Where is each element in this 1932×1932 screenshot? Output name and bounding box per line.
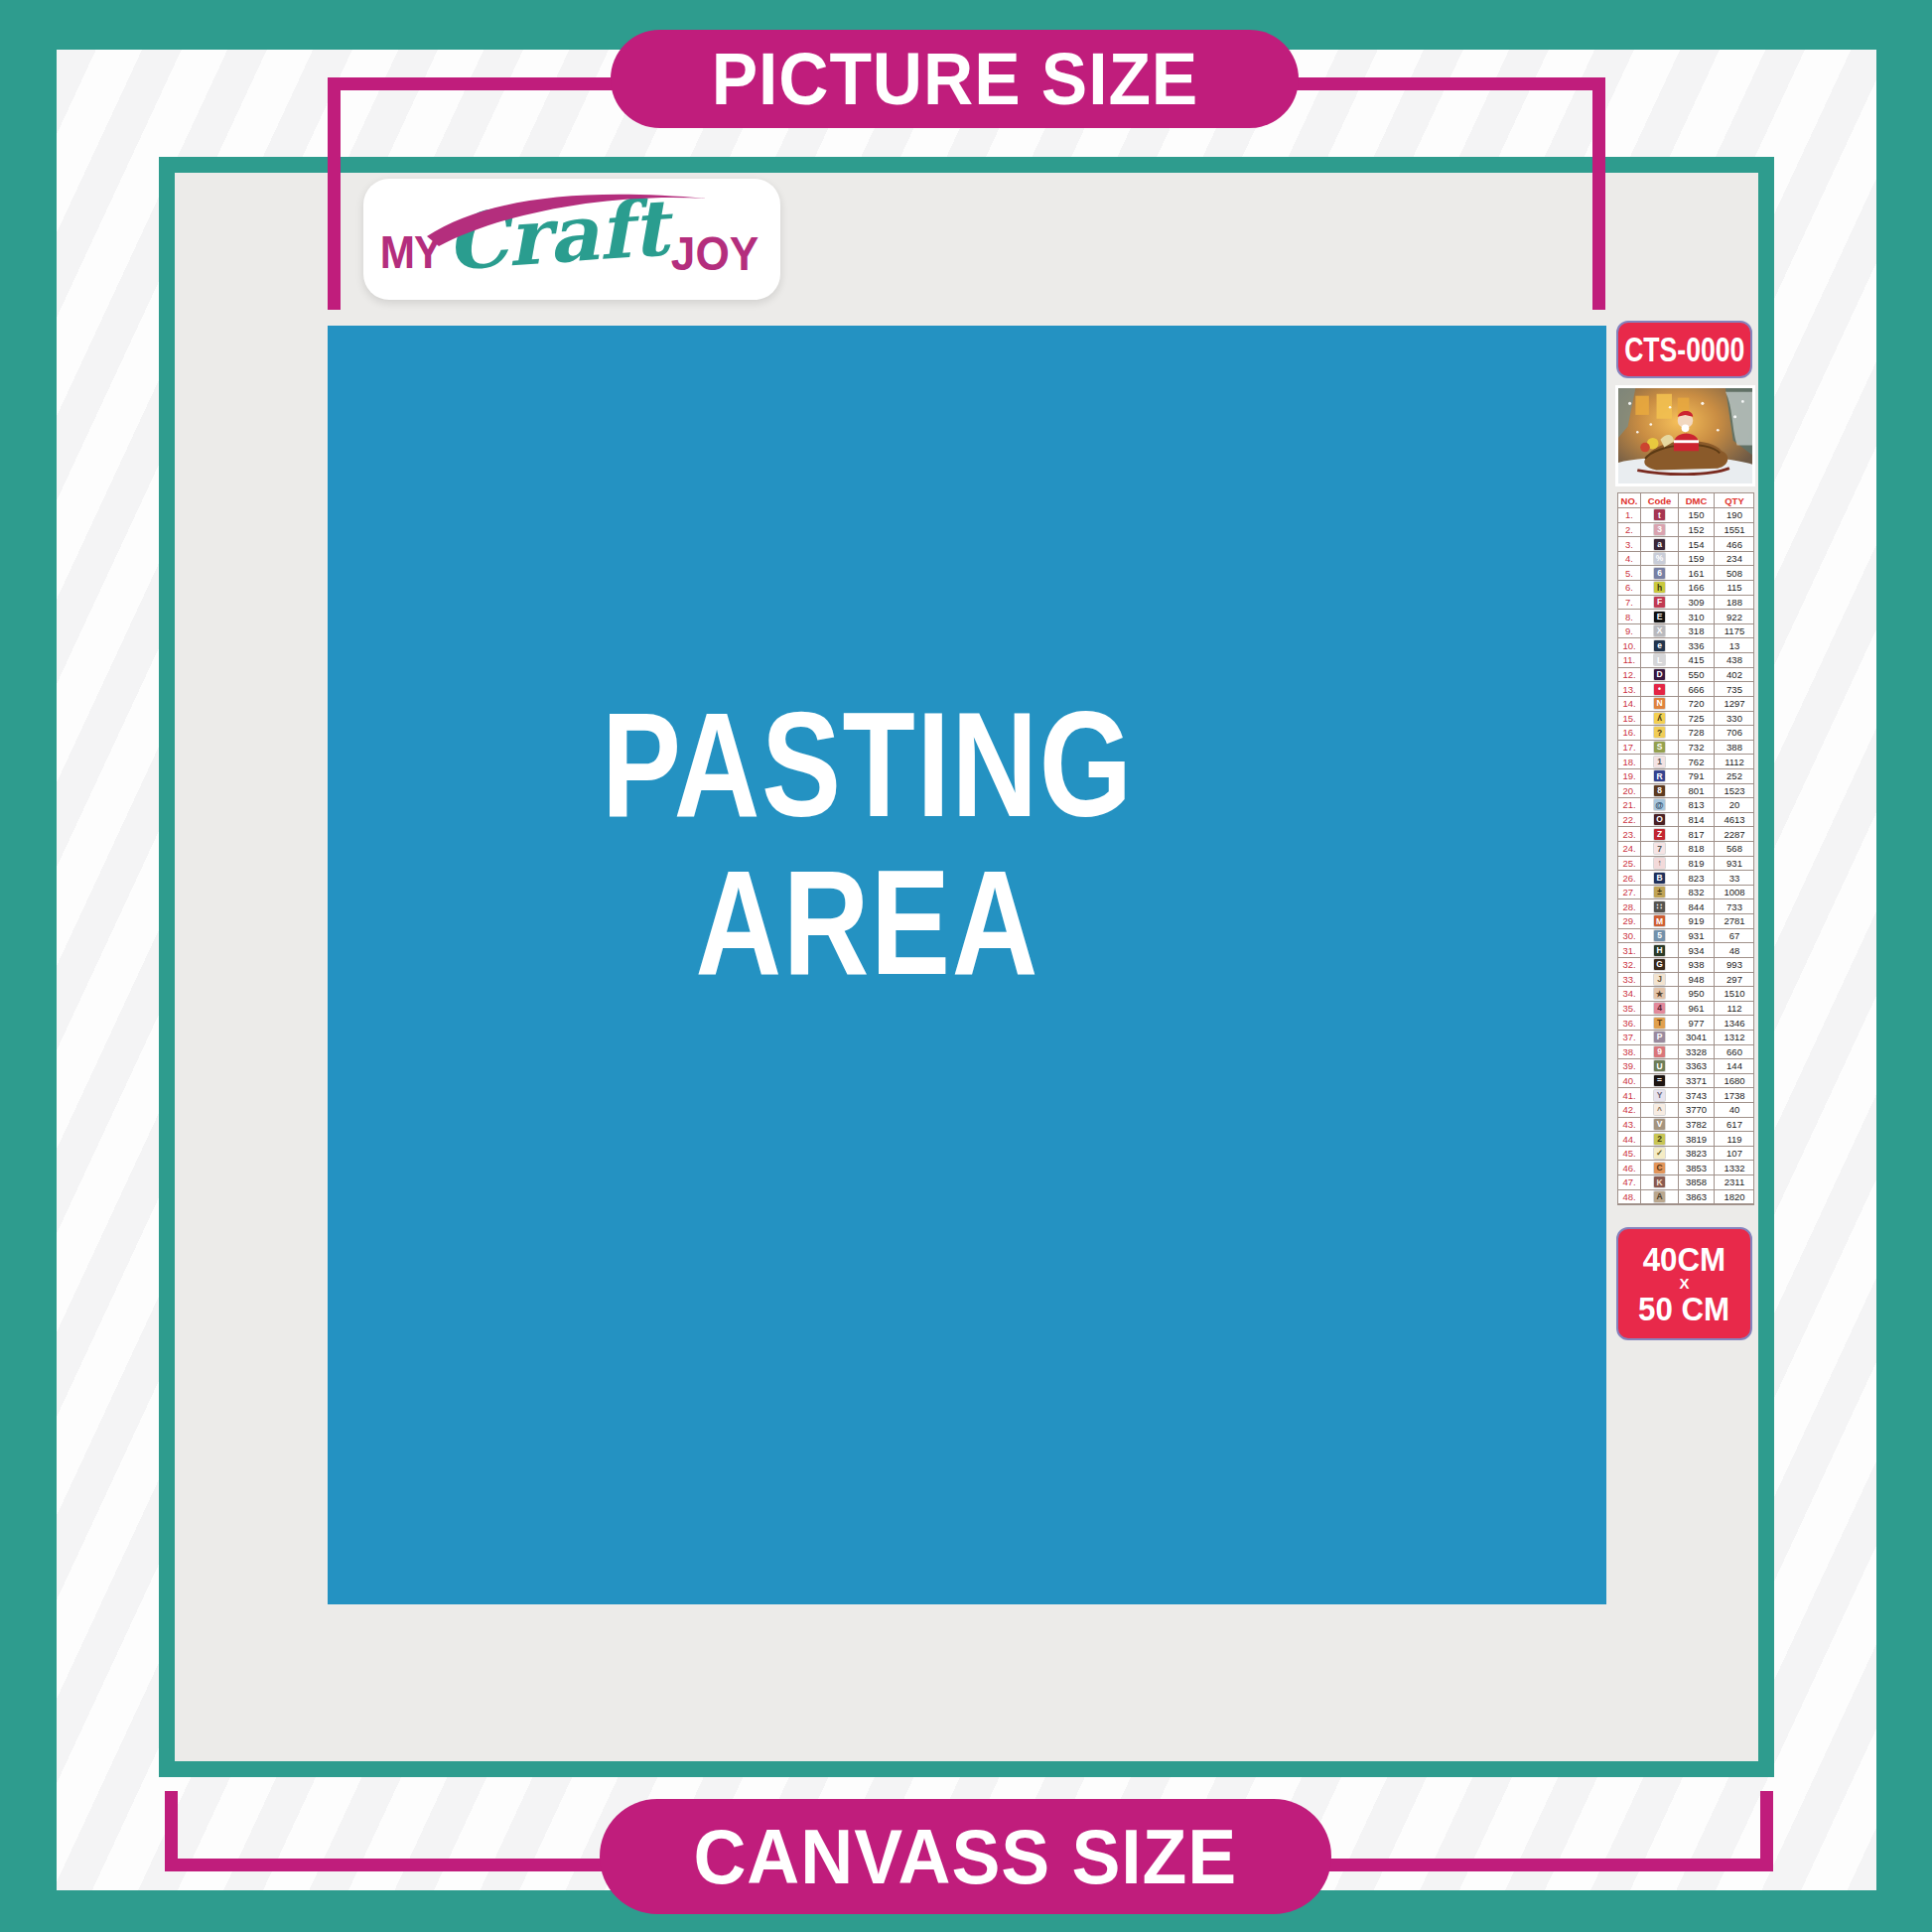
code-symbol-swatch: L — [1654, 654, 1665, 665]
row-number: 19. — [1618, 769, 1641, 784]
row-number: 39. — [1618, 1059, 1641, 1074]
column-header: QTY — [1715, 493, 1754, 508]
code-cell: h — [1641, 581, 1679, 596]
code-symbol-swatch: 5 — [1654, 930, 1665, 941]
row-number: 24. — [1618, 842, 1641, 857]
dmc-value: 161 — [1679, 566, 1715, 581]
color-table-row: 6.h166115 — [1618, 581, 1753, 596]
qty-value: 190 — [1715, 508, 1754, 523]
color-table-row: 11.L415438 — [1618, 653, 1753, 668]
code-symbol-swatch: h — [1654, 582, 1665, 593]
dmc-value: 336 — [1679, 638, 1715, 653]
row-number: 47. — [1618, 1175, 1641, 1190]
code-symbol-swatch: T — [1654, 1018, 1665, 1029]
dmc-value: 3782 — [1679, 1118, 1715, 1133]
dmc-value: 3823 — [1679, 1147, 1715, 1162]
row-number: 32. — [1618, 958, 1641, 973]
row-number: 18. — [1618, 755, 1641, 769]
dmc-value: 732 — [1679, 741, 1715, 756]
code-cell: P — [1641, 1031, 1679, 1045]
code-cell: H — [1641, 943, 1679, 958]
code-symbol-swatch: Y — [1654, 1090, 1665, 1101]
dmc-value: 817 — [1679, 827, 1715, 842]
dmc-value: 961 — [1679, 1002, 1715, 1017]
row-number: 36. — [1618, 1016, 1641, 1031]
dmc-value: 152 — [1679, 523, 1715, 538]
code-symbol-swatch: S — [1654, 742, 1665, 753]
code-symbol-swatch: 3 — [1654, 524, 1665, 535]
dmc-value: 919 — [1679, 914, 1715, 929]
color-table-row: 21.@81320 — [1618, 798, 1753, 813]
color-table-row: 35.4961112 — [1618, 1002, 1753, 1017]
code-symbol-swatch: G — [1654, 959, 1665, 970]
row-number: 14. — [1618, 697, 1641, 712]
dmc-value: 154 — [1679, 537, 1715, 552]
dmc-value: 938 — [1679, 958, 1715, 973]
dmc-value: 728 — [1679, 726, 1715, 741]
dmc-value: 725 — [1679, 712, 1715, 727]
dmc-value: 3328 — [1679, 1045, 1715, 1060]
code-symbol-swatch: @ — [1654, 799, 1665, 810]
color-table: NO.CodeDMCQTY1.t1501902.315215513.a15446… — [1617, 492, 1754, 1205]
dmc-value: 762 — [1679, 755, 1715, 769]
row-number: 27. — [1618, 886, 1641, 900]
qty-value: 1346 — [1715, 1016, 1754, 1031]
code-symbol-swatch: 2 — [1654, 1134, 1665, 1145]
dmc-value: 415 — [1679, 653, 1715, 668]
color-table-row: 37.P30411312 — [1618, 1031, 1753, 1045]
code-cell: 7 — [1641, 842, 1679, 857]
qty-value: 234 — [1715, 552, 1754, 567]
dmc-value: 3770 — [1679, 1103, 1715, 1118]
code-cell: e — [1641, 638, 1679, 653]
code-cell: B — [1641, 871, 1679, 886]
qty-value: 660 — [1715, 1045, 1754, 1060]
code-symbol-swatch: D — [1654, 669, 1665, 680]
row-number: 3. — [1618, 537, 1641, 552]
color-table-row: 25.↑819931 — [1618, 857, 1753, 872]
picture-size-label: PICTURE SIZE — [711, 37, 1198, 121]
color-table-row: 20.88011523 — [1618, 784, 1753, 799]
code-cell: 9 — [1641, 1045, 1679, 1060]
code-cell: 6 — [1641, 566, 1679, 581]
dmc-value: 823 — [1679, 871, 1715, 886]
qty-value: 568 — [1715, 842, 1754, 857]
code-symbol-swatch: a — [1654, 539, 1665, 550]
sku-badge: CTS-0000 — [1616, 321, 1752, 378]
code-cell: t — [1641, 508, 1679, 523]
code-cell: Y — [1641, 1088, 1679, 1103]
size-line3: 50 CM — [1638, 1292, 1729, 1325]
code-symbol-swatch: • — [1654, 684, 1665, 695]
pasting-area-label: PASTING AREA — [602, 686, 1134, 1002]
code-symbol-swatch: B — [1654, 873, 1665, 884]
column-header: NO. — [1618, 493, 1641, 508]
code-cell: D — [1641, 668, 1679, 683]
qty-value: 20 — [1715, 798, 1754, 813]
color-table-row: 16.?728706 — [1618, 726, 1753, 741]
dmc-value: 3363 — [1679, 1059, 1715, 1074]
dmc-value: 3853 — [1679, 1161, 1715, 1175]
color-table-row: 45.✓3823107 — [1618, 1147, 1753, 1162]
color-table-row: 2.31521551 — [1618, 523, 1753, 538]
qty-value: 735 — [1715, 682, 1754, 697]
dmc-value: 818 — [1679, 842, 1715, 857]
color-table-row: 19.R791252 — [1618, 769, 1753, 784]
row-number: 37. — [1618, 1031, 1641, 1045]
code-cell: 2 — [1641, 1132, 1679, 1147]
code-symbol-swatch: 7 — [1654, 843, 1665, 854]
qty-value: 1312 — [1715, 1031, 1754, 1045]
qty-value: 144 — [1715, 1059, 1754, 1074]
row-number: 35. — [1618, 1002, 1641, 1017]
code-symbol-swatch: P — [1654, 1032, 1665, 1042]
color-table-row: 31.H93448 — [1618, 943, 1753, 958]
qty-value: 922 — [1715, 610, 1754, 624]
dmc-value: 3863 — [1679, 1190, 1715, 1205]
qty-value: 1008 — [1715, 886, 1754, 900]
code-cell: a — [1641, 537, 1679, 552]
dmc-value: 844 — [1679, 899, 1715, 914]
logo-word-my: MY — [380, 225, 442, 279]
code-cell: • — [1641, 682, 1679, 697]
row-number: 28. — [1618, 899, 1641, 914]
code-symbol-swatch: Z — [1654, 829, 1665, 840]
code-symbol-swatch: ^ — [1654, 1104, 1665, 1115]
row-number: 21. — [1618, 798, 1641, 813]
color-table-row: 33.J948297 — [1618, 973, 1753, 988]
dmc-value: 801 — [1679, 784, 1715, 799]
code-cell: 5 — [1641, 929, 1679, 944]
dmc-value: 309 — [1679, 596, 1715, 611]
code-symbol-swatch: U — [1654, 1060, 1665, 1071]
code-symbol-swatch: % — [1654, 553, 1665, 564]
code-symbol-swatch: V — [1654, 1119, 1665, 1130]
color-table-row: 15.ʎ725330 — [1618, 712, 1753, 727]
color-table-row: 28.∷844733 — [1618, 899, 1753, 914]
color-table-row: 32.G938993 — [1618, 958, 1753, 973]
row-number: 38. — [1618, 1045, 1641, 1060]
color-table-row: 12.D550402 — [1618, 668, 1753, 683]
dmc-value: 3041 — [1679, 1031, 1715, 1045]
color-table-row: 23.Z8172287 — [1618, 827, 1753, 842]
canvass-size-pill: CANVASS SIZE — [600, 1799, 1331, 1914]
code-symbol-swatch: 6 — [1654, 568, 1665, 579]
dmc-value: 950 — [1679, 987, 1715, 1002]
color-table-row: 8.E310922 — [1618, 610, 1753, 624]
code-symbol-swatch: ∷ — [1654, 901, 1665, 912]
code-cell: E — [1641, 610, 1679, 624]
code-symbol-swatch: J — [1654, 974, 1665, 985]
color-table-row: 14.N7201297 — [1618, 697, 1753, 712]
code-cell: J — [1641, 973, 1679, 988]
qty-value: 13 — [1715, 638, 1754, 653]
dmc-value: 813 — [1679, 798, 1715, 813]
color-table-row: 36.T9771346 — [1618, 1016, 1753, 1031]
product-thumbnail — [1615, 385, 1755, 486]
row-number: 7. — [1618, 596, 1641, 611]
dmc-value: 666 — [1679, 682, 1715, 697]
code-cell: 4 — [1641, 1002, 1679, 1017]
row-number: 16. — [1618, 726, 1641, 741]
row-number: 6. — [1618, 581, 1641, 596]
qty-value: 402 — [1715, 668, 1754, 683]
logo-word-joy: JOY — [671, 226, 759, 281]
code-symbol-swatch: N — [1654, 698, 1665, 709]
qty-value: 733 — [1715, 899, 1754, 914]
code-cell: ✓ — [1641, 1147, 1679, 1162]
dmc-value: 819 — [1679, 857, 1715, 872]
canvass-size-label: CANVASS SIZE — [694, 1812, 1238, 1902]
code-symbol-swatch: M — [1654, 915, 1665, 926]
code-symbol-swatch: 1 — [1654, 757, 1665, 767]
code-cell: ∷ — [1641, 899, 1679, 914]
code-cell: 3 — [1641, 523, 1679, 538]
row-number: 9. — [1618, 624, 1641, 639]
code-cell: T — [1641, 1016, 1679, 1031]
code-cell: ★ — [1641, 987, 1679, 1002]
color-table-row: 10.e33613 — [1618, 638, 1753, 653]
row-number: 4. — [1618, 552, 1641, 567]
canvass-frame-left-stub — [165, 1791, 178, 1871]
color-table-row: 44.23819119 — [1618, 1132, 1753, 1147]
code-cell: X — [1641, 624, 1679, 639]
code-symbol-swatch: ✓ — [1654, 1148, 1665, 1159]
qty-value: 297 — [1715, 973, 1754, 988]
code-cell: M — [1641, 914, 1679, 929]
qty-value: 330 — [1715, 712, 1754, 727]
row-number: 46. — [1618, 1161, 1641, 1175]
qty-value: 1820 — [1715, 1190, 1754, 1205]
row-number: 30. — [1618, 929, 1641, 944]
qty-value: 993 — [1715, 958, 1754, 973]
code-cell: ± — [1641, 886, 1679, 900]
code-symbol-swatch: C — [1654, 1163, 1665, 1173]
row-number: 11. — [1618, 653, 1641, 668]
color-table-row: 18.17621112 — [1618, 755, 1753, 769]
picture-frame-right-line — [1592, 77, 1605, 310]
color-table-row: 43.V3782617 — [1618, 1118, 1753, 1133]
code-cell: ? — [1641, 726, 1679, 741]
row-number: 2. — [1618, 523, 1641, 538]
code-cell: ʎ — [1641, 712, 1679, 727]
code-cell: O — [1641, 813, 1679, 828]
row-number: 40. — [1618, 1074, 1641, 1089]
code-symbol-swatch: ± — [1654, 887, 1665, 897]
pasting-area: PASTING AREA — [328, 326, 1606, 1604]
code-cell: ^ — [1641, 1103, 1679, 1118]
code-symbol-swatch: ★ — [1654, 988, 1665, 999]
qty-value: 931 — [1715, 857, 1754, 872]
row-number: 29. — [1618, 914, 1641, 929]
row-number: 33. — [1618, 973, 1641, 988]
dmc-value: 791 — [1679, 769, 1715, 784]
color-table-row: 38.93328660 — [1618, 1045, 1753, 1060]
color-table-row: 4.%159234 — [1618, 552, 1753, 567]
dmc-value: 318 — [1679, 624, 1715, 639]
color-table-row: 27.±8321008 — [1618, 886, 1753, 900]
color-table-row: 47.K38582311 — [1618, 1175, 1753, 1190]
code-cell: ↑ — [1641, 857, 1679, 872]
qty-value: 119 — [1715, 1132, 1754, 1147]
code-symbol-swatch: 9 — [1654, 1046, 1665, 1057]
qty-value: 40 — [1715, 1103, 1754, 1118]
qty-value: 4613 — [1715, 813, 1754, 828]
code-cell: C — [1641, 1161, 1679, 1175]
qty-value: 1297 — [1715, 697, 1754, 712]
code-symbol-swatch: F — [1654, 597, 1665, 608]
row-number: 48. — [1618, 1190, 1641, 1205]
code-symbol-swatch: ? — [1654, 727, 1665, 738]
code-symbol-swatch: 4 — [1654, 1003, 1665, 1014]
dmc-value: 931 — [1679, 929, 1715, 944]
code-cell: G — [1641, 958, 1679, 973]
code-cell: N — [1641, 697, 1679, 712]
qty-value: 1175 — [1715, 624, 1754, 639]
code-symbol-swatch: ʎ — [1654, 713, 1665, 724]
row-number: 8. — [1618, 610, 1641, 624]
dmc-value: 550 — [1679, 668, 1715, 683]
code-cell: = — [1641, 1074, 1679, 1089]
dmc-value: 166 — [1679, 581, 1715, 596]
color-table-row: 9.X3181175 — [1618, 624, 1753, 639]
color-table-row: 3.a154466 — [1618, 537, 1753, 552]
code-cell: V — [1641, 1118, 1679, 1133]
qty-value: 1738 — [1715, 1088, 1754, 1103]
pasting-line1: PASTING — [602, 686, 1134, 844]
color-table-row: 17.S732388 — [1618, 741, 1753, 756]
code-cell: Z — [1641, 827, 1679, 842]
qty-value: 466 — [1715, 537, 1754, 552]
code-symbol-swatch: 8 — [1654, 785, 1665, 796]
color-table-row: 39.U3363144 — [1618, 1059, 1753, 1074]
code-symbol-swatch: R — [1654, 770, 1665, 781]
canvass-frame-right-stub — [1760, 1791, 1773, 1871]
color-table-row: 30.593167 — [1618, 929, 1753, 944]
row-number: 5. — [1618, 566, 1641, 581]
color-table-row: 5.6161508 — [1618, 566, 1753, 581]
color-table-row: 46.C38531332 — [1618, 1161, 1753, 1175]
qty-value: 1112 — [1715, 755, 1754, 769]
code-symbol-swatch: X — [1654, 625, 1665, 636]
qty-value: 252 — [1715, 769, 1754, 784]
qty-value: 112 — [1715, 1002, 1754, 1017]
qty-value: 107 — [1715, 1147, 1754, 1162]
color-table-row: 29.M9192781 — [1618, 914, 1753, 929]
color-table-row: 13.•666735 — [1618, 682, 1753, 697]
qty-value: 33 — [1715, 871, 1754, 886]
qty-value: 67 — [1715, 929, 1754, 944]
qty-value: 48 — [1715, 943, 1754, 958]
pasting-line2: AREA — [602, 844, 1134, 1002]
row-number: 23. — [1618, 827, 1641, 842]
dmc-value: 977 — [1679, 1016, 1715, 1031]
color-table-row: 1.t150190 — [1618, 508, 1753, 523]
code-cell: F — [1641, 596, 1679, 611]
row-number: 25. — [1618, 857, 1641, 872]
column-header: DMC — [1679, 493, 1715, 508]
logo-word-craft: Craft — [444, 189, 670, 281]
row-number: 45. — [1618, 1147, 1641, 1162]
size-badge: 40CM X 50 CM — [1616, 1227, 1752, 1340]
row-number: 41. — [1618, 1088, 1641, 1103]
dmc-value: 159 — [1679, 552, 1715, 567]
code-cell: A — [1641, 1190, 1679, 1205]
qty-value: 1332 — [1715, 1161, 1754, 1175]
qty-value: 706 — [1715, 726, 1754, 741]
picture-frame-left-line — [328, 77, 341, 310]
picture-size-pill: PICTURE SIZE — [611, 30, 1299, 128]
code-symbol-swatch: K — [1654, 1176, 1665, 1187]
code-cell: 8 — [1641, 784, 1679, 799]
qty-value: 1680 — [1715, 1074, 1754, 1089]
code-cell: 1 — [1641, 755, 1679, 769]
dmc-value: 720 — [1679, 697, 1715, 712]
dmc-value: 310 — [1679, 610, 1715, 624]
qty-value: 1551 — [1715, 523, 1754, 538]
code-symbol-swatch: t — [1654, 509, 1665, 520]
qty-value: 388 — [1715, 741, 1754, 756]
color-table-row: 7.F309188 — [1618, 596, 1753, 611]
dmc-value: 814 — [1679, 813, 1715, 828]
dmc-value: 3858 — [1679, 1175, 1715, 1190]
dmc-value: 948 — [1679, 973, 1715, 988]
code-symbol-swatch: H — [1654, 945, 1665, 956]
qty-value: 2287 — [1715, 827, 1754, 842]
qty-value: 2781 — [1715, 914, 1754, 929]
color-table-row: 48.A38631820 — [1618, 1190, 1753, 1205]
qty-value: 508 — [1715, 566, 1754, 581]
qty-value: 617 — [1715, 1118, 1754, 1133]
color-table-row: 42.^377040 — [1618, 1103, 1753, 1118]
color-table-row: 34.★9501510 — [1618, 987, 1753, 1002]
dmc-value: 934 — [1679, 943, 1715, 958]
color-table-row: 26.B82333 — [1618, 871, 1753, 886]
row-number: 13. — [1618, 682, 1641, 697]
dmc-value: 3819 — [1679, 1132, 1715, 1147]
code-cell: K — [1641, 1175, 1679, 1190]
product-size-guide-graphic: MY Craft JOY PASTING AREA CTS-0000 — [0, 0, 1932, 1932]
code-symbol-swatch: O — [1654, 814, 1665, 825]
color-table-row: 40.=33711680 — [1618, 1074, 1753, 1089]
code-symbol-swatch: E — [1654, 612, 1665, 622]
qty-value: 1510 — [1715, 987, 1754, 1002]
qty-value: 438 — [1715, 653, 1754, 668]
code-cell: S — [1641, 741, 1679, 756]
row-number: 42. — [1618, 1103, 1641, 1118]
qty-value: 115 — [1715, 581, 1754, 596]
row-number: 43. — [1618, 1118, 1641, 1133]
code-cell: U — [1641, 1059, 1679, 1074]
mycraftjoy-logo: MY Craft JOY — [363, 179, 780, 300]
dmc-value: 3743 — [1679, 1088, 1715, 1103]
santa-sleigh-scene-icon — [1618, 388, 1752, 483]
row-number: 22. — [1618, 813, 1641, 828]
code-cell: L — [1641, 653, 1679, 668]
code-symbol-swatch: = — [1654, 1075, 1665, 1086]
row-number: 17. — [1618, 741, 1641, 756]
code-symbol-swatch: A — [1654, 1191, 1665, 1202]
row-number: 31. — [1618, 943, 1641, 958]
code-symbol-swatch: e — [1654, 640, 1665, 651]
code-symbol-swatch: ↑ — [1654, 858, 1665, 869]
color-table-row: 41.Y37431738 — [1618, 1088, 1753, 1103]
row-number: 44. — [1618, 1132, 1641, 1147]
color-table-row: 22.O8144613 — [1618, 813, 1753, 828]
row-number: 34. — [1618, 987, 1641, 1002]
qty-value: 188 — [1715, 596, 1754, 611]
dmc-value: 150 — [1679, 508, 1715, 523]
